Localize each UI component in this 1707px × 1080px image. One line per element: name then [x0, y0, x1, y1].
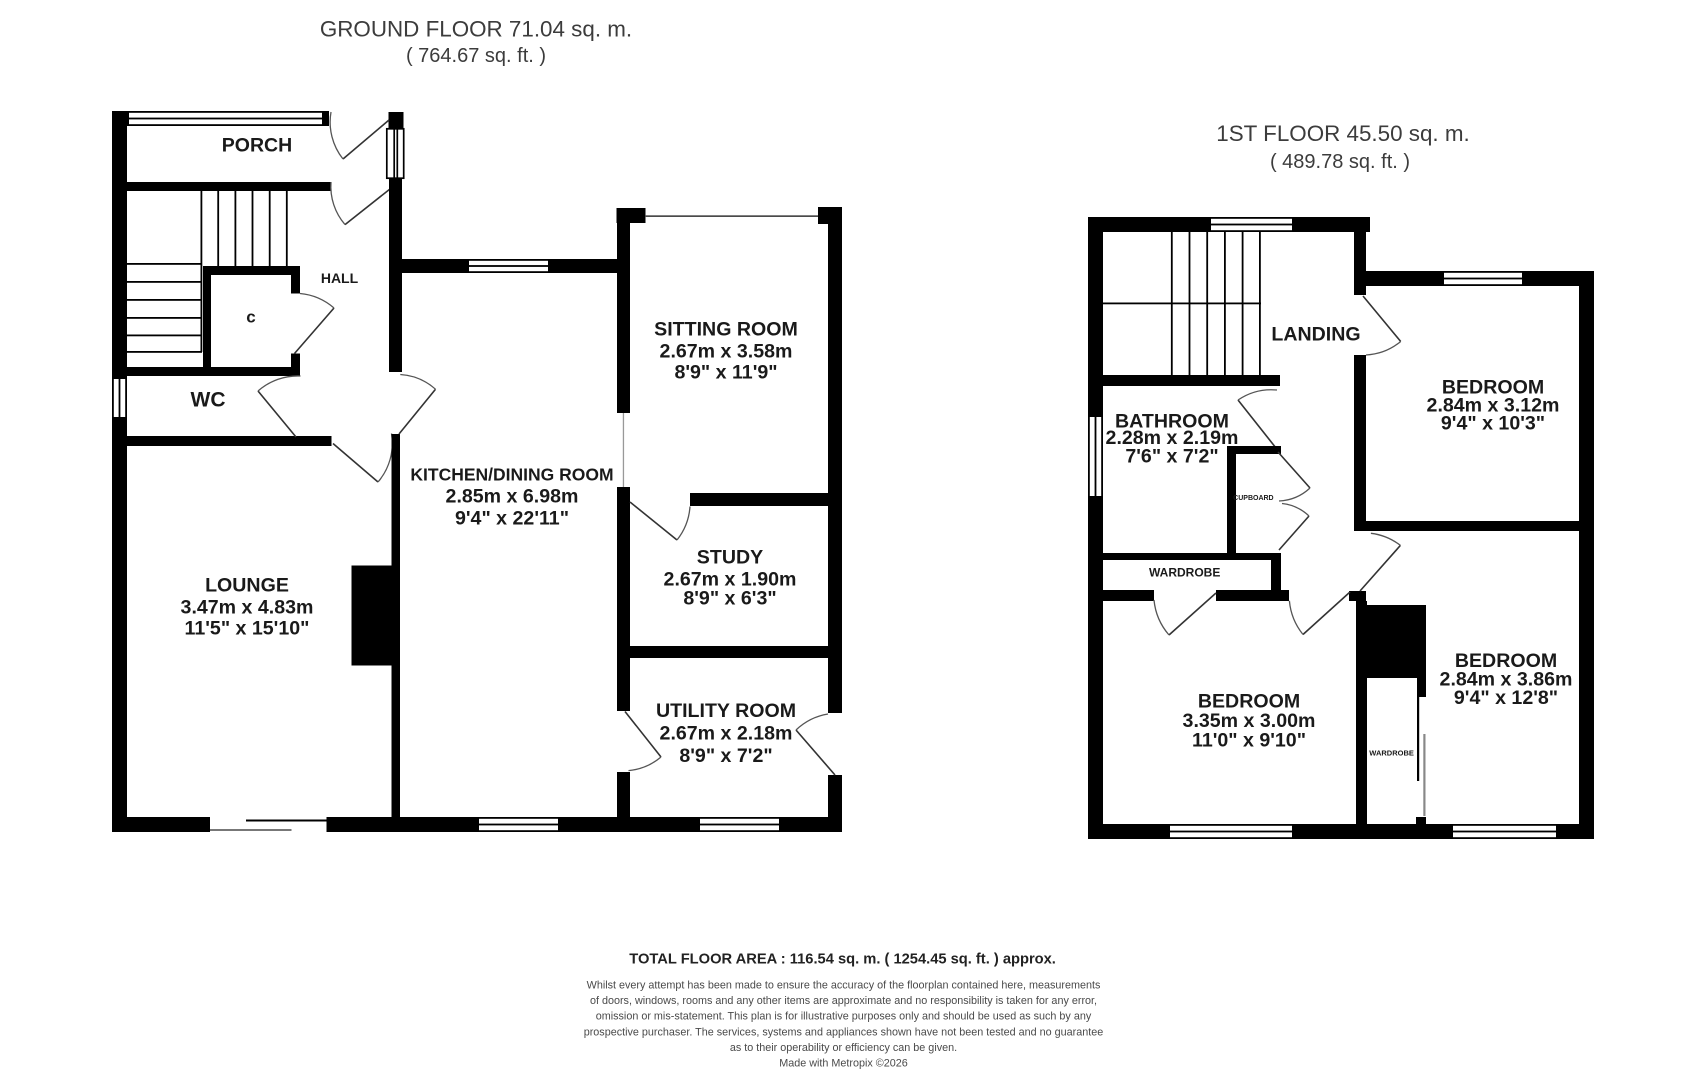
svg-text:9'4" x 10'3": 9'4" x 10'3" — [1441, 413, 1545, 435]
svg-text:2.85m x 6.98m: 2.85m x 6.98m — [446, 486, 579, 508]
svg-text:of doors, windows, rooms and a: of doors, windows, rooms and any other i… — [590, 995, 1097, 1007]
svg-text:2.67m x 2.18m: 2.67m x 2.18m — [660, 723, 793, 745]
svg-text:LANDING: LANDING — [1271, 324, 1360, 346]
svg-text:7'6" x 7'2": 7'6" x 7'2" — [1125, 446, 1218, 468]
svg-text:2.67m x 3.58m: 2.67m x 3.58m — [660, 341, 793, 363]
svg-text:1ST FLOOR 45.50 sq. m.: 1ST FLOOR 45.50 sq. m. — [1216, 121, 1469, 146]
svg-text:9'4" x 22'11": 9'4" x 22'11" — [455, 508, 569, 530]
svg-text:CUPBOARD: CUPBOARD — [1233, 495, 1273, 502]
svg-text:HALL: HALL — [321, 270, 359, 286]
svg-text:KITCHEN/DINING ROOM: KITCHEN/DINING ROOM — [410, 465, 613, 485]
svg-text:11'5" x 15'10": 11'5" x 15'10" — [185, 618, 310, 640]
svg-text:WARDROBE: WARDROBE — [1369, 749, 1414, 758]
svg-text:omission or mis-statement. Thi: omission or mis-statement. This plan is … — [596, 1011, 1092, 1023]
svg-text:WC: WC — [191, 389, 226, 412]
svg-text:STUDY: STUDY — [697, 547, 763, 569]
svg-text:c: c — [246, 308, 255, 327]
svg-text:WARDROBE: WARDROBE — [1149, 566, 1220, 580]
svg-text:TOTAL FLOOR AREA : 116.54 sq.: TOTAL FLOOR AREA : 116.54 sq. m. ( 1254.… — [629, 952, 1056, 968]
svg-text:prospective purchaser. The ser: prospective purchaser. The services, sys… — [584, 1026, 1104, 1038]
svg-text:9'4" x 12'8": 9'4" x 12'8" — [1454, 687, 1558, 709]
svg-text:8'9" x 6'3": 8'9" x 6'3" — [683, 588, 776, 610]
svg-text:Whilst every attempt has been: Whilst every attempt has been made to en… — [587, 980, 1101, 992]
svg-text:LOUNGE: LOUNGE — [205, 575, 289, 597]
svg-text:( 489.78 sq. ft. ): ( 489.78 sq. ft. ) — [1270, 151, 1410, 173]
svg-text:Made with Metropix ©2026: Made with Metropix ©2026 — [779, 1058, 908, 1070]
svg-text:3.47m x 4.83m: 3.47m x 4.83m — [181, 597, 314, 619]
svg-text:11'0" x 9'10": 11'0" x 9'10" — [1192, 730, 1306, 752]
svg-text:( 764.67 sq. ft. ): ( 764.67 sq. ft. ) — [406, 45, 546, 67]
svg-text:SITTING ROOM: SITTING ROOM — [654, 319, 798, 341]
svg-text:PORCH: PORCH — [222, 135, 292, 157]
svg-text:UTILITY ROOM: UTILITY ROOM — [656, 700, 796, 722]
svg-text:8'9" x 7'2": 8'9" x 7'2" — [679, 745, 772, 767]
svg-text:as to their operability or eff: as to their operability or efficiency ca… — [730, 1042, 957, 1054]
svg-text:GROUND FLOOR 71.04 sq. m.: GROUND FLOOR 71.04 sq. m. — [320, 17, 632, 42]
svg-text:8'9" x 11'9": 8'9" x 11'9" — [674, 362, 777, 384]
